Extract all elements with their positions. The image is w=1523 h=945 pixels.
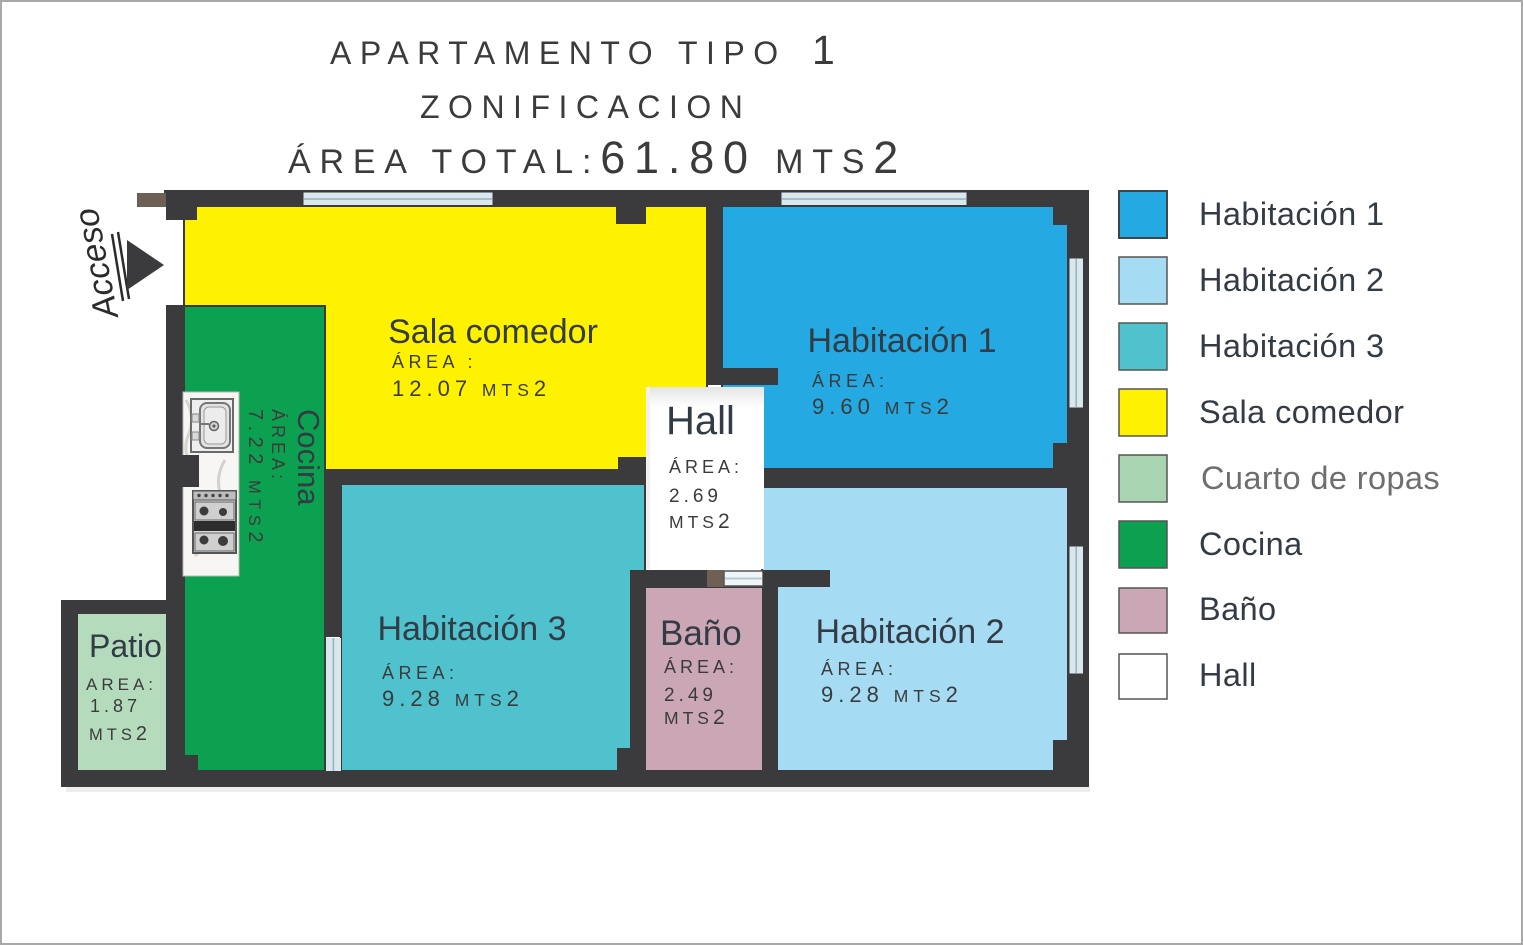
svg-text:9.28 MTS2: 9.28 MTS2 (821, 682, 963, 707)
svg-text:ÁREA:: ÁREA: (664, 657, 738, 677)
svg-text:ÁREA:: ÁREA: (669, 457, 743, 477)
svg-text:12.07 MTS2: 12.07 MTS2 (392, 376, 551, 401)
svg-text:9.60 MTS2: 9.60 MTS2 (812, 394, 954, 419)
svg-text:Habitación 2: Habitación 2 (815, 613, 1004, 651)
svg-text:Sala comedor: Sala comedor (1199, 394, 1404, 430)
svg-text:Habitación 3: Habitación 3 (377, 610, 566, 648)
svg-text:Patio: Patio (89, 628, 162, 664)
svg-text:Cocina: Cocina (1199, 526, 1303, 562)
svg-text:MTS2: MTS2 (89, 723, 151, 745)
svg-text:ÁREA:: ÁREA: (812, 371, 889, 391)
svg-text:Habitación 1: Habitación 1 (1199, 196, 1384, 232)
svg-text:Cocina: Cocina (291, 409, 326, 506)
svg-text:1.87: 1.87 (90, 696, 141, 716)
svg-text:APARTAMENTO TIPO 1: APARTAMENTO TIPO 1 (330, 27, 843, 73)
svg-text:ÁREA:: ÁREA: (382, 663, 459, 683)
svg-text:9.28 MTS2: 9.28 MTS2 (382, 686, 524, 711)
svg-text:Hall: Hall (1199, 657, 1257, 693)
svg-text:Habitación 2: Habitación 2 (1199, 262, 1384, 298)
svg-text:ZONIFICACION: ZONIFICACION (420, 89, 751, 125)
svg-text:Hall: Hall (666, 399, 735, 443)
svg-text:Sala comedor: Sala comedor (388, 313, 598, 351)
svg-text:Cuarto de ropas: Cuarto de ropas (1201, 460, 1440, 496)
svg-text:ÁREA TOTAL:61.80 MTS2: ÁREA TOTAL:61.80 MTS2 (288, 132, 907, 183)
svg-text:ÁREA:: ÁREA: (268, 409, 288, 483)
svg-text:Habitación 3: Habitación 3 (1199, 328, 1384, 364)
svg-text:Baño: Baño (660, 614, 742, 653)
svg-text:2.69: 2.69 (669, 486, 722, 507)
svg-text:2.49: 2.49 (664, 685, 717, 706)
svg-text:MTS2: MTS2 (664, 706, 729, 729)
svg-text:ÁREA:: ÁREA: (821, 659, 898, 679)
svg-text:Baño: Baño (1199, 591, 1277, 627)
svg-text:Habitación 1: Habitación 1 (807, 322, 996, 360)
svg-text:ÁREA :: ÁREA : (392, 352, 477, 372)
svg-text:AREA:: AREA: (86, 675, 157, 694)
svg-text:7.22 MTS2: 7.22 MTS2 (244, 409, 266, 548)
svg-text:MTS2: MTS2 (669, 510, 734, 533)
